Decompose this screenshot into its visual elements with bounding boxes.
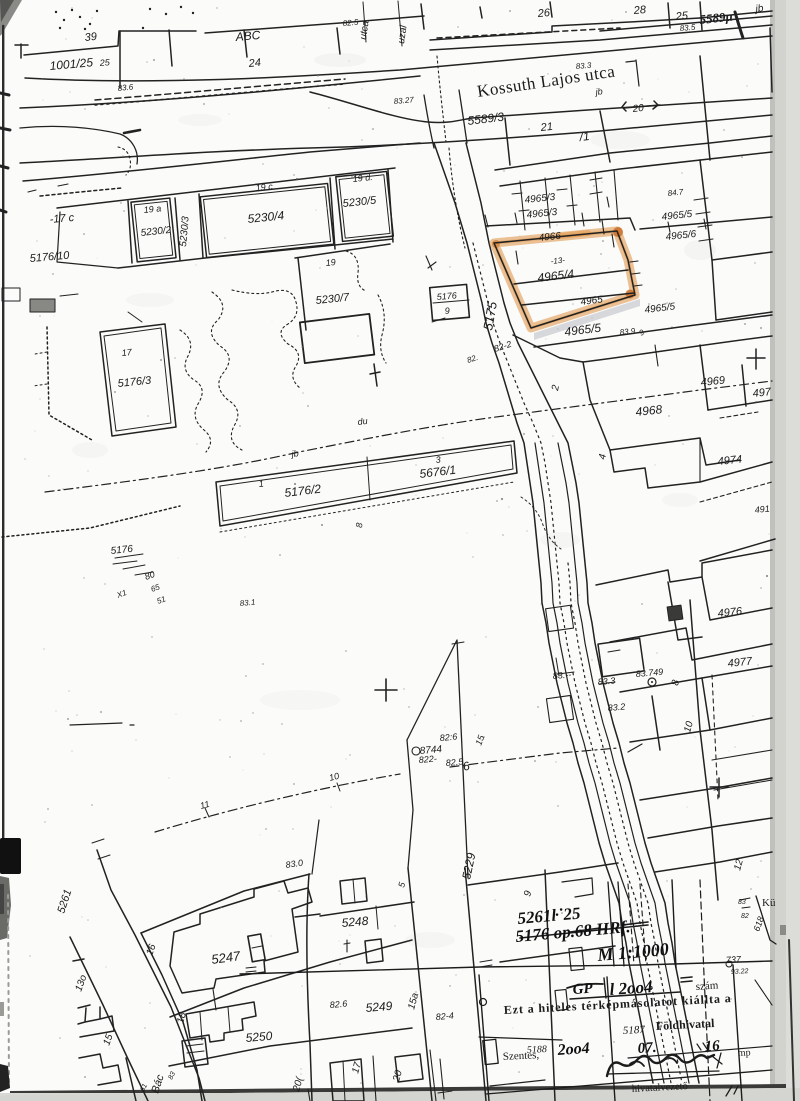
svg-text:5230/5: 5230/5: [342, 194, 378, 210]
svg-text:51: 51: [156, 594, 167, 606]
svg-text:65: 65: [150, 582, 162, 594]
svg-text:5176: 5176: [436, 290, 457, 302]
svg-text:-13-: -13-: [550, 256, 565, 266]
svg-text:4965/3: 4965/3: [524, 192, 556, 206]
svg-text:5230/4: 5230/4: [247, 208, 285, 226]
svg-text:93.22: 93.22: [731, 968, 749, 976]
svg-text:82-2: 82-2: [493, 339, 513, 354]
svg-text:X1: X1: [115, 588, 128, 600]
svg-text:5229: 5229: [459, 851, 478, 880]
svg-text:82.6: 82.6: [329, 999, 347, 1010]
svg-text:10: 10: [328, 771, 340, 783]
svg-text:26: 26: [536, 7, 551, 20]
svg-text:5230/3: 5230/3: [178, 215, 192, 247]
svg-text:83.3: 83.3: [597, 676, 615, 687]
svg-text:4965/6: 4965/6: [665, 229, 697, 243]
svg-text:13o: 13o: [73, 973, 89, 993]
svg-text:16: 16: [704, 1038, 721, 1055]
svg-text:/1: /1: [578, 129, 590, 144]
svg-text:83: 83: [167, 1071, 177, 1081]
svg-text:Földhivatal: Földhivatal: [655, 1016, 715, 1033]
svg-text:83.6: 83.6: [117, 82, 134, 93]
svg-text:5247: 5247: [210, 948, 241, 967]
svg-text:3: 3: [435, 455, 441, 465]
svg-text:M 1:1000: M 1:1000: [596, 939, 670, 965]
svg-text:4966: 4966: [538, 231, 562, 244]
svg-text:5250: 5250: [245, 1029, 273, 1045]
svg-text:2oo4: 2oo4: [556, 1040, 590, 1059]
svg-text:du: du: [357, 416, 368, 427]
svg-text:15a: 15a: [406, 991, 421, 1010]
svg-text:12: 12: [732, 858, 746, 872]
svg-text:822-: 822-: [418, 753, 437, 765]
svg-text:82: 82: [741, 913, 749, 920]
svg-text:jb: jb: [594, 86, 603, 97]
svg-text:5: 5: [396, 880, 407, 888]
svg-text:9: 9: [638, 327, 647, 337]
svg-text:4974: 4974: [717, 453, 743, 467]
svg-text:1001/25: 1001/25: [49, 55, 94, 73]
svg-text:618: 618: [751, 915, 766, 933]
svg-text:GP: GP: [572, 981, 594, 998]
svg-text:83.5: 83.5: [679, 23, 696, 33]
svg-text:5176: 5176: [110, 544, 134, 557]
svg-text:4965/5: 4965/5: [644, 301, 676, 316]
svg-text:15: 15: [101, 1032, 115, 1047]
svg-text:83.1: 83.1: [239, 598, 255, 608]
svg-text:5261: 5261: [55, 888, 74, 915]
svg-text:82-4: 82-4: [435, 1010, 454, 1022]
svg-text:5188: 5188: [527, 1044, 548, 1056]
svg-text:4976: 4976: [717, 605, 743, 620]
svg-text:737: 737: [726, 954, 743, 965]
svg-text:11: 11: [199, 799, 211, 811]
svg-text:utca: utca: [358, 20, 372, 41]
svg-text:19: 19: [325, 257, 336, 268]
svg-text:19 c: 19 c: [255, 181, 273, 193]
svg-text:25: 25: [674, 10, 689, 23]
svg-text:83.27: 83.27: [393, 95, 414, 106]
svg-text:5249: 5249: [365, 999, 393, 1015]
svg-text:4977: 4977: [727, 655, 753, 670]
svg-text:5176/3: 5176/3: [117, 374, 153, 390]
svg-text:jb: jb: [290, 448, 299, 459]
svg-text:4: 4: [597, 453, 609, 461]
svg-text:4965/5: 4965/5: [661, 209, 693, 223]
svg-text:83: 83: [738, 899, 746, 906]
svg-text:16: 16: [144, 942, 158, 957]
svg-text:8: 8: [354, 522, 364, 528]
svg-text:Kü: Kü: [762, 897, 776, 909]
svg-text:25: 25: [98, 57, 111, 68]
svg-text:07.: 07.: [637, 1040, 657, 1057]
svg-text:82.5: 82.5: [342, 18, 359, 28]
svg-text:84.7: 84.7: [667, 187, 684, 198]
svg-text:1: 1: [258, 479, 264, 489]
svg-text:9: 9: [444, 306, 450, 316]
svg-text:5230/2: 5230/2: [140, 225, 172, 239]
svg-text:19 d.: 19 d.: [352, 172, 373, 184]
svg-text:szám: szám: [695, 979, 719, 993]
svg-text:4968: 4968: [635, 402, 663, 419]
svg-text:9: 9: [522, 889, 534, 898]
svg-text:82:6: 82:6: [439, 732, 457, 743]
svg-text:5176/2: 5176/2: [284, 482, 322, 500]
svg-text:39: 39: [84, 31, 97, 44]
svg-text:4969: 4969: [700, 374, 726, 388]
svg-text:5248: 5248: [341, 914, 369, 930]
svg-text:15: 15: [473, 733, 486, 747]
svg-text:2: 2: [550, 384, 562, 393]
svg-text:83.9: 83.9: [619, 326, 636, 337]
svg-text:5175: 5175: [480, 300, 500, 332]
svg-text:80: 80: [143, 569, 156, 582]
svg-text:83.749: 83.749: [635, 667, 663, 679]
svg-text:-17 c: -17 c: [49, 212, 75, 226]
svg-text:ABC: ABC: [234, 28, 261, 44]
svg-text:19 a: 19 a: [143, 203, 161, 215]
svg-text:83.--: 83.--: [552, 669, 571, 681]
svg-text:82.: 82.: [466, 353, 479, 365]
svg-text:5187: 5187: [623, 1024, 646, 1037]
svg-text:497: 497: [752, 386, 772, 400]
svg-text:5230/7: 5230/7: [315, 291, 351, 307]
svg-text:5676/1: 5676/1: [419, 463, 457, 481]
svg-text:17: 17: [121, 347, 133, 358]
svg-text:491: 491: [754, 503, 770, 515]
svg-text:24: 24: [247, 57, 261, 70]
svg-text:8: 8: [670, 679, 682, 687]
svg-text:83.2: 83.2: [607, 702, 625, 713]
svg-text:21: 21: [539, 121, 553, 134]
svg-text:5589μ: 5589μ: [699, 9, 734, 27]
svg-text:uzal: uzal: [396, 24, 410, 44]
svg-text:4965/4: 4965/4: [537, 267, 575, 285]
svg-text:20: 20: [631, 103, 645, 115]
svg-text:5589/3: 5589/3: [467, 110, 505, 128]
svg-text:83.0: 83.0: [285, 858, 304, 870]
svg-text:82.5: 82.5: [445, 756, 464, 768]
svg-text:4965/3: 4965/3: [526, 207, 558, 221]
svg-text:28: 28: [632, 4, 647, 17]
svg-text:mp: mp: [738, 1047, 751, 1059]
